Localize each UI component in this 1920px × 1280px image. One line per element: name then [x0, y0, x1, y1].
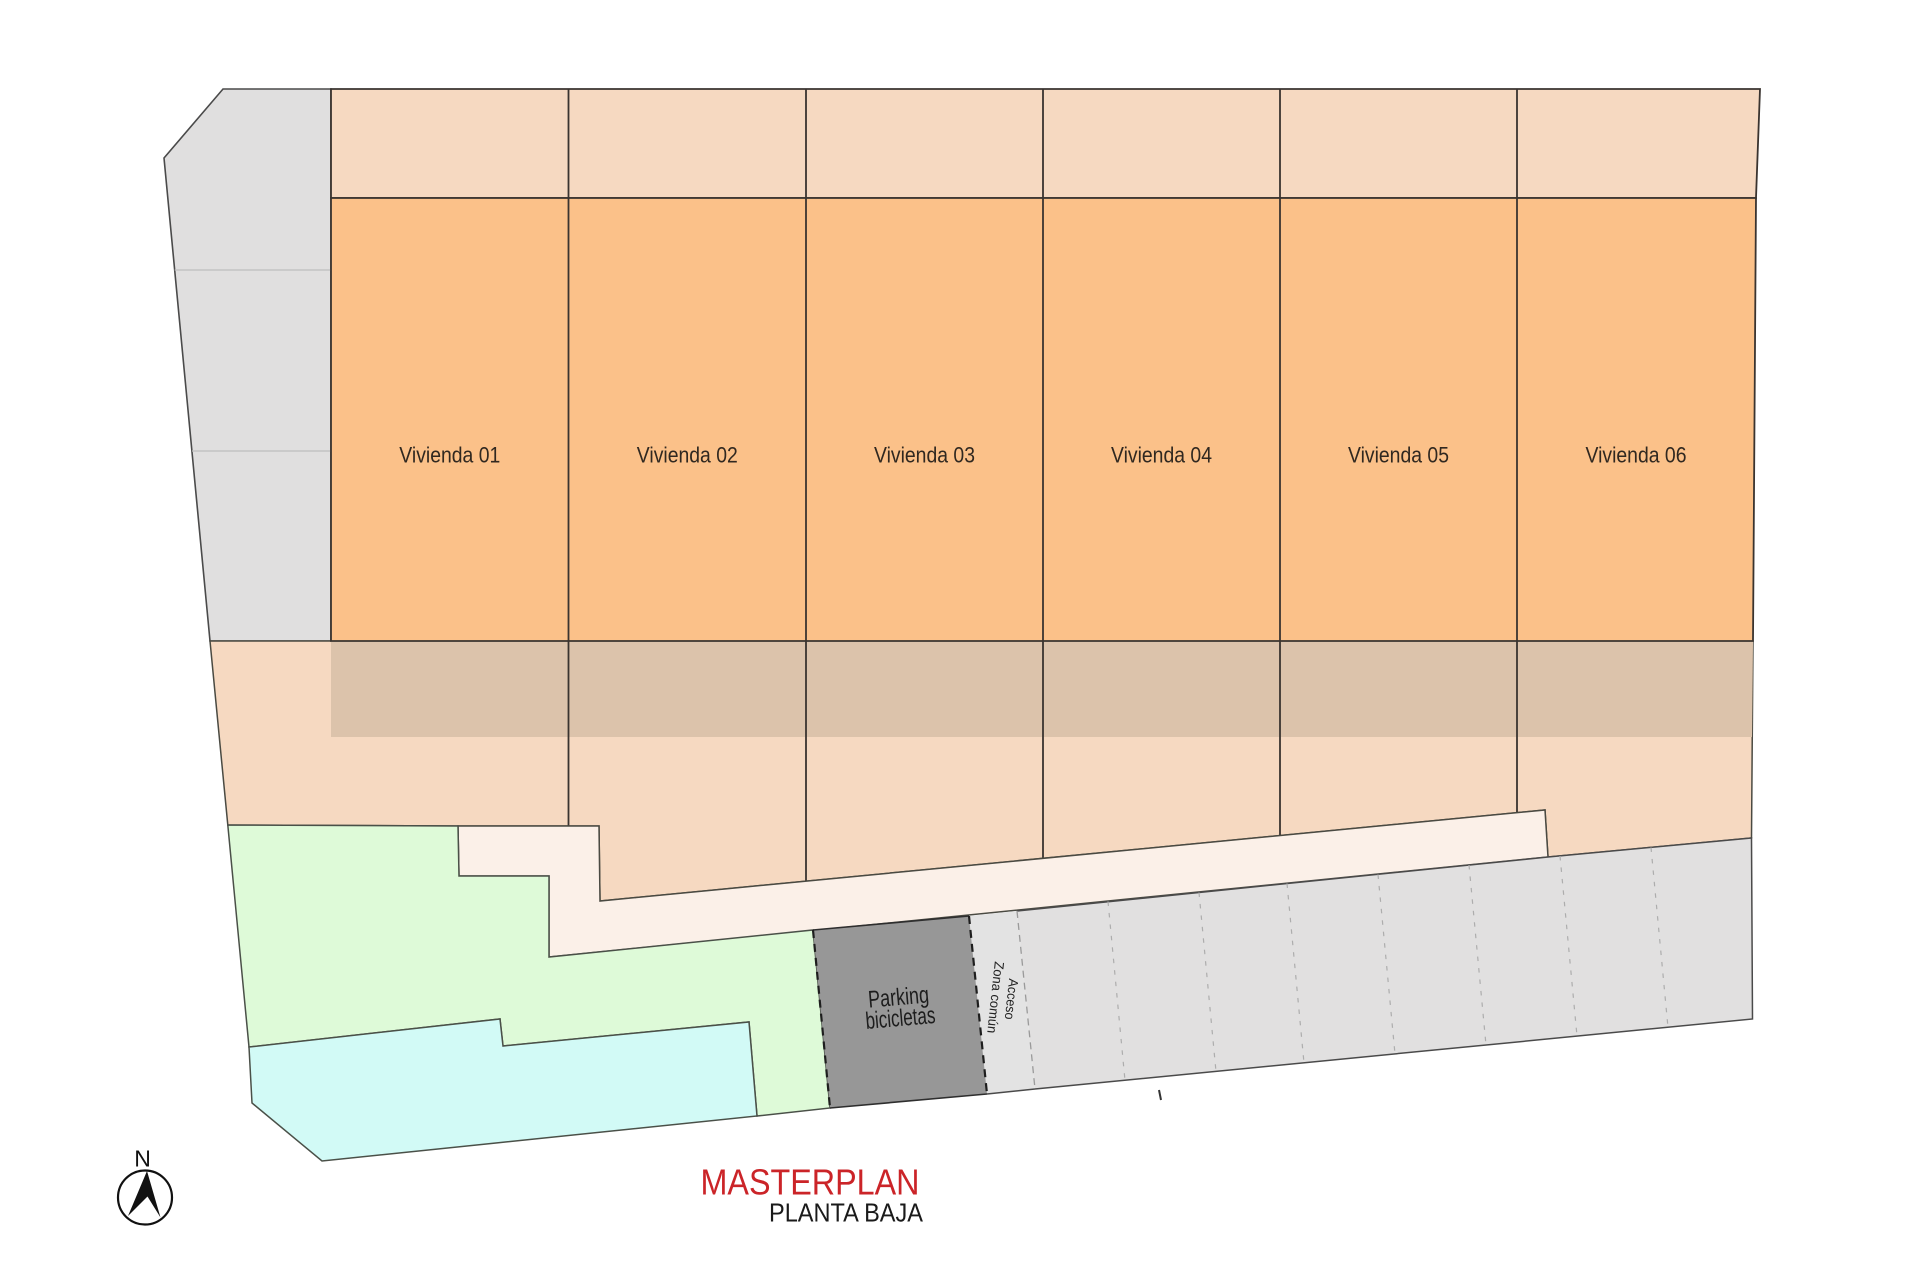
- svg-text:Vivienda 02: Vivienda 02: [637, 443, 738, 468]
- svg-text:Vivienda 01: Vivienda 01: [399, 443, 500, 468]
- svg-text:PLANTA BAJA: PLANTA BAJA: [769, 1198, 924, 1228]
- svg-text:Vivienda 06: Vivienda 06: [1586, 443, 1687, 468]
- svg-text:Vivienda 04: Vivienda 04: [1111, 443, 1212, 468]
- svg-text:Vivienda 03: Vivienda 03: [874, 443, 975, 468]
- svg-text:Vivienda 05: Vivienda 05: [1348, 443, 1449, 468]
- svg-text:N: N: [134, 1146, 151, 1172]
